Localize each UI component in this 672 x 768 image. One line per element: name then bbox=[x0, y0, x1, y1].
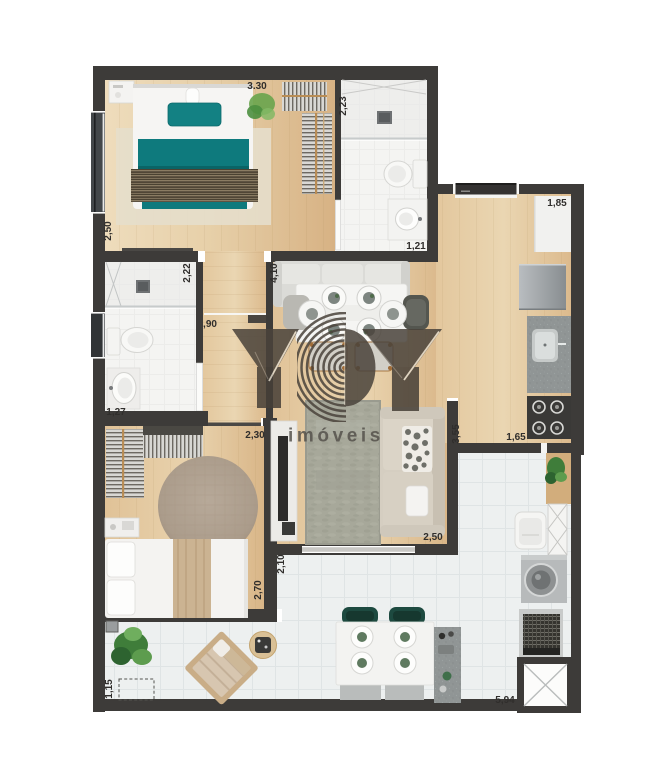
svg-text:3.30: 3.30 bbox=[247, 81, 267, 92]
svg-text:5,94: 5,94 bbox=[495, 695, 515, 706]
svg-text:4,10: 4,10 bbox=[269, 263, 280, 283]
svg-text:2,23: 2,23 bbox=[338, 96, 349, 116]
svg-text:2,50: 2,50 bbox=[103, 221, 114, 241]
svg-text:2,70: 2,70 bbox=[253, 580, 264, 600]
svg-text:1,27: 1,27 bbox=[106, 407, 126, 418]
svg-text:2,50: 2,50 bbox=[423, 532, 443, 543]
svg-text:1,85: 1,85 bbox=[547, 198, 567, 209]
svg-text:2,22: 2,22 bbox=[182, 263, 193, 283]
svg-text:1,21: 1,21 bbox=[406, 241, 426, 252]
svg-text:3,55: 3,55 bbox=[451, 424, 462, 444]
svg-text:,90: ,90 bbox=[203, 319, 217, 330]
svg-text:1,15: 1,15 bbox=[104, 679, 115, 699]
svg-text:1,65: 1,65 bbox=[506, 432, 526, 443]
svg-text:2,30: 2,30 bbox=[245, 430, 265, 441]
svg-text:imóveis: imóveis bbox=[288, 426, 384, 447]
svg-text:2,10: 2,10 bbox=[276, 554, 287, 574]
